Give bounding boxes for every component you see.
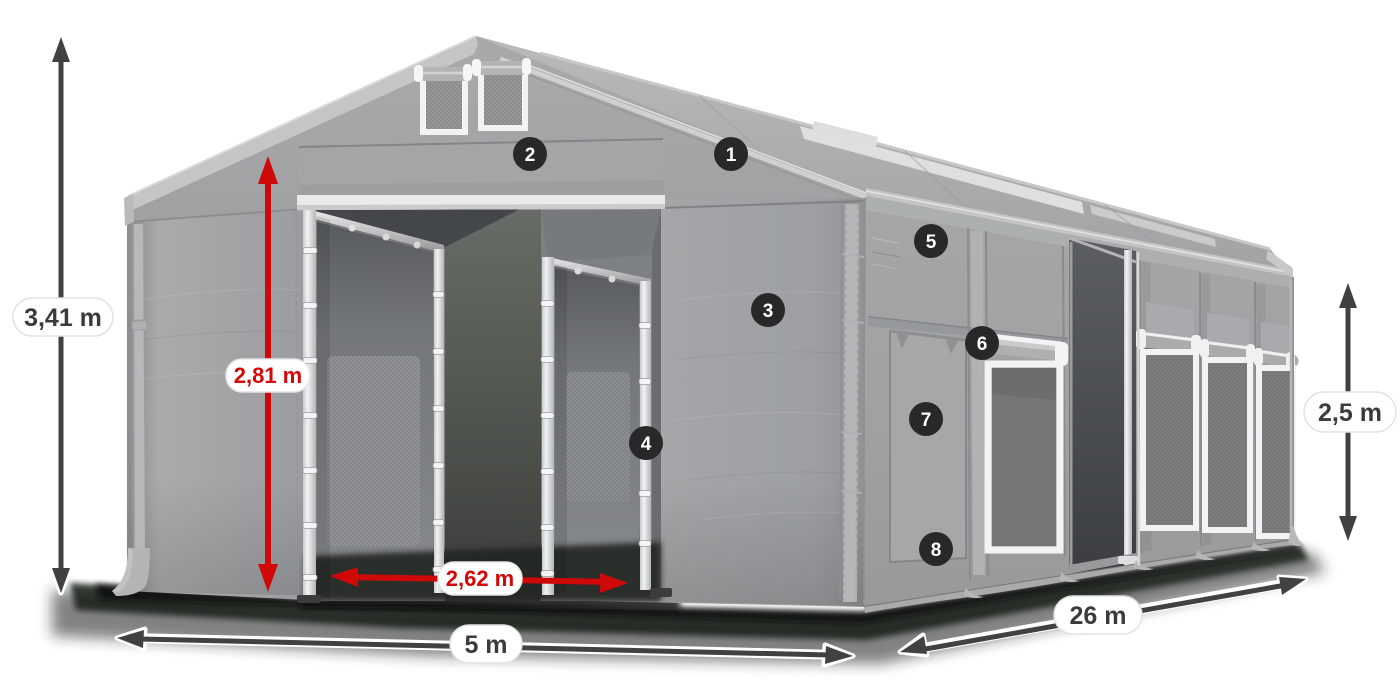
- svg-text:2,62 m: 2,62 m: [446, 566, 515, 591]
- svg-text:3,41 m: 3,41 m: [24, 304, 102, 332]
- svg-text:4: 4: [641, 434, 652, 455]
- svg-text:2,81 m: 2,81 m: [234, 363, 303, 388]
- svg-text:1: 1: [726, 145, 737, 166]
- svg-text:5 m: 5 m: [464, 631, 507, 659]
- svg-text:7: 7: [921, 410, 932, 431]
- svg-text:2,5 m: 2,5 m: [1318, 399, 1382, 427]
- svg-text:5: 5: [926, 232, 937, 253]
- svg-text:8: 8: [931, 540, 942, 561]
- svg-text:26 m: 26 m: [1070, 602, 1127, 630]
- svg-text:2: 2: [525, 145, 536, 166]
- svg-text:6: 6: [977, 334, 988, 355]
- svg-text:3: 3: [763, 301, 774, 322]
